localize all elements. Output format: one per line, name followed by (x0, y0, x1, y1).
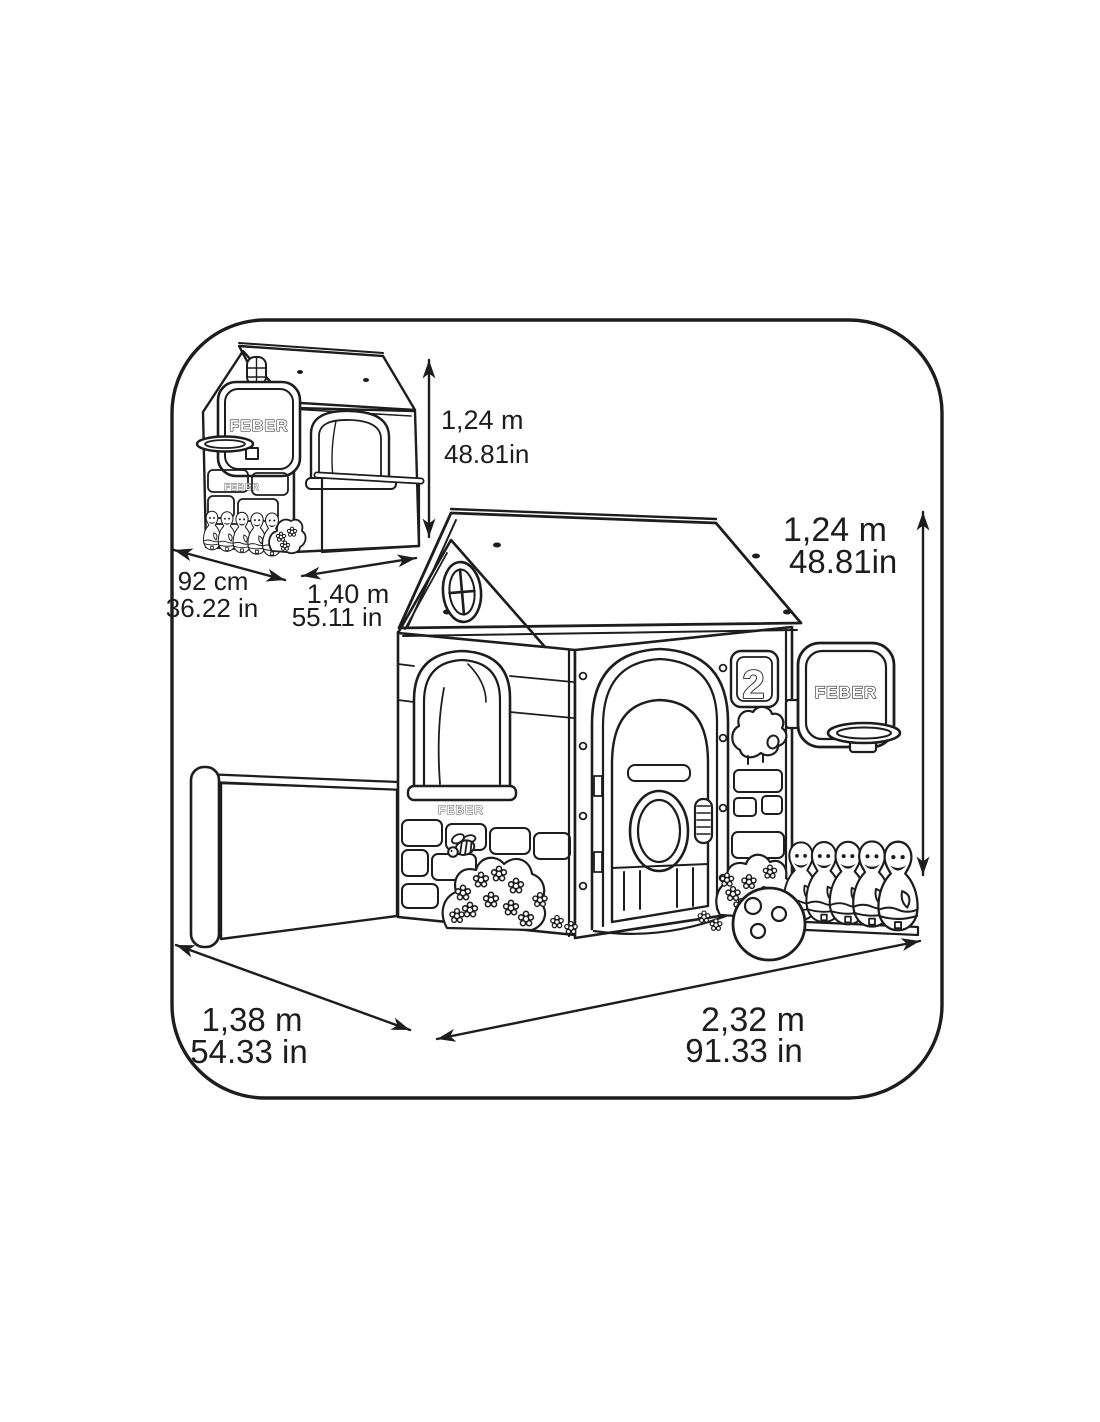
main-width-arrow (437, 941, 920, 1039)
inset-bowling-pins (203, 511, 281, 556)
main-width-imperial-label: 91.33 in (685, 1032, 802, 1069)
left-wall-arched-window (408, 651, 516, 800)
house-number: 2 (742, 663, 765, 707)
soccer-goal-drawing (191, 767, 401, 947)
inset-width-imperial-label: 55.11 in (292, 602, 383, 632)
house-number-plaque: 2 (731, 651, 778, 707)
inset-wall-feber-logo: FEBER (224, 482, 260, 492)
inset-height-metric-label: 1,24 m (441, 405, 524, 435)
dimension-diagram: FEBER FEBER (0, 0, 1100, 1422)
inset-house-drawing: FEBER FEBER (197, 343, 421, 556)
main-house-drawing: FEBER (398, 509, 801, 938)
main-height-imperial-label: 48.81in (789, 543, 897, 580)
inset-backboard-feber-logo: FEBER (229, 418, 288, 435)
soccer-net (221, 783, 397, 939)
inset-depth-metric-label: 92 cm (178, 566, 249, 596)
backboard-feber-logo: FEBER (815, 683, 878, 702)
product-dimension-sheet: FEBER FEBER (0, 0, 1100, 1422)
goal-post (191, 767, 219, 947)
inset-width-arrow (302, 558, 416, 576)
inset-depth-imperial-label: 36.22 in (166, 593, 259, 623)
basketball-rim (828, 723, 900, 743)
main-depth-imperial-label: 54.33 in (190, 1033, 307, 1070)
bowling-ball-drawing (733, 888, 805, 960)
basketball-backboard-drawing: FEBER (786, 643, 900, 752)
wall-feber-logo: FEBER (438, 803, 484, 817)
inset-height-imperial-label: 48.81in (444, 439, 529, 469)
